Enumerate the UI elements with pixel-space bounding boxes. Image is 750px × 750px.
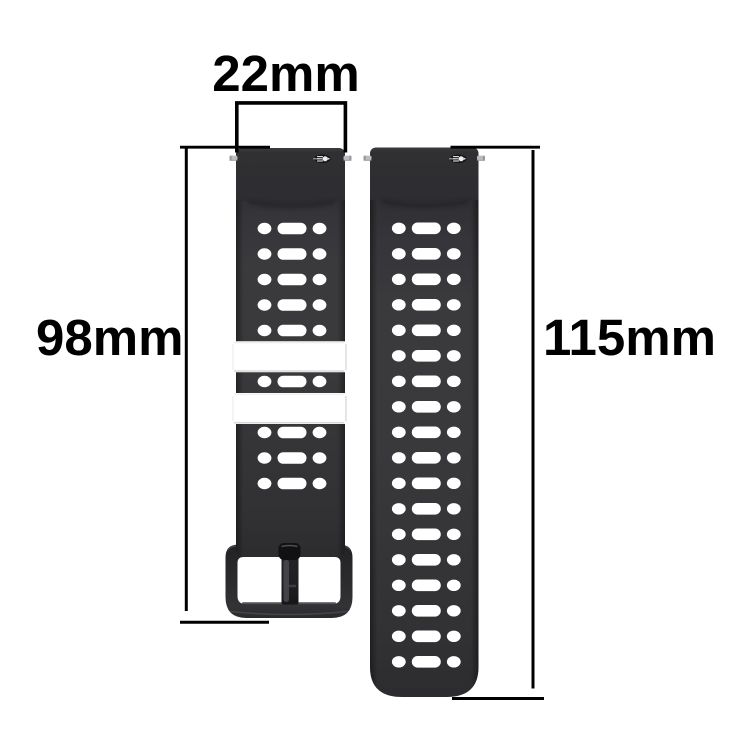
- svg-text:22mm: 22mm: [212, 45, 359, 102]
- svg-text:98mm: 98mm: [36, 309, 183, 366]
- svg-text:115mm: 115mm: [543, 309, 716, 366]
